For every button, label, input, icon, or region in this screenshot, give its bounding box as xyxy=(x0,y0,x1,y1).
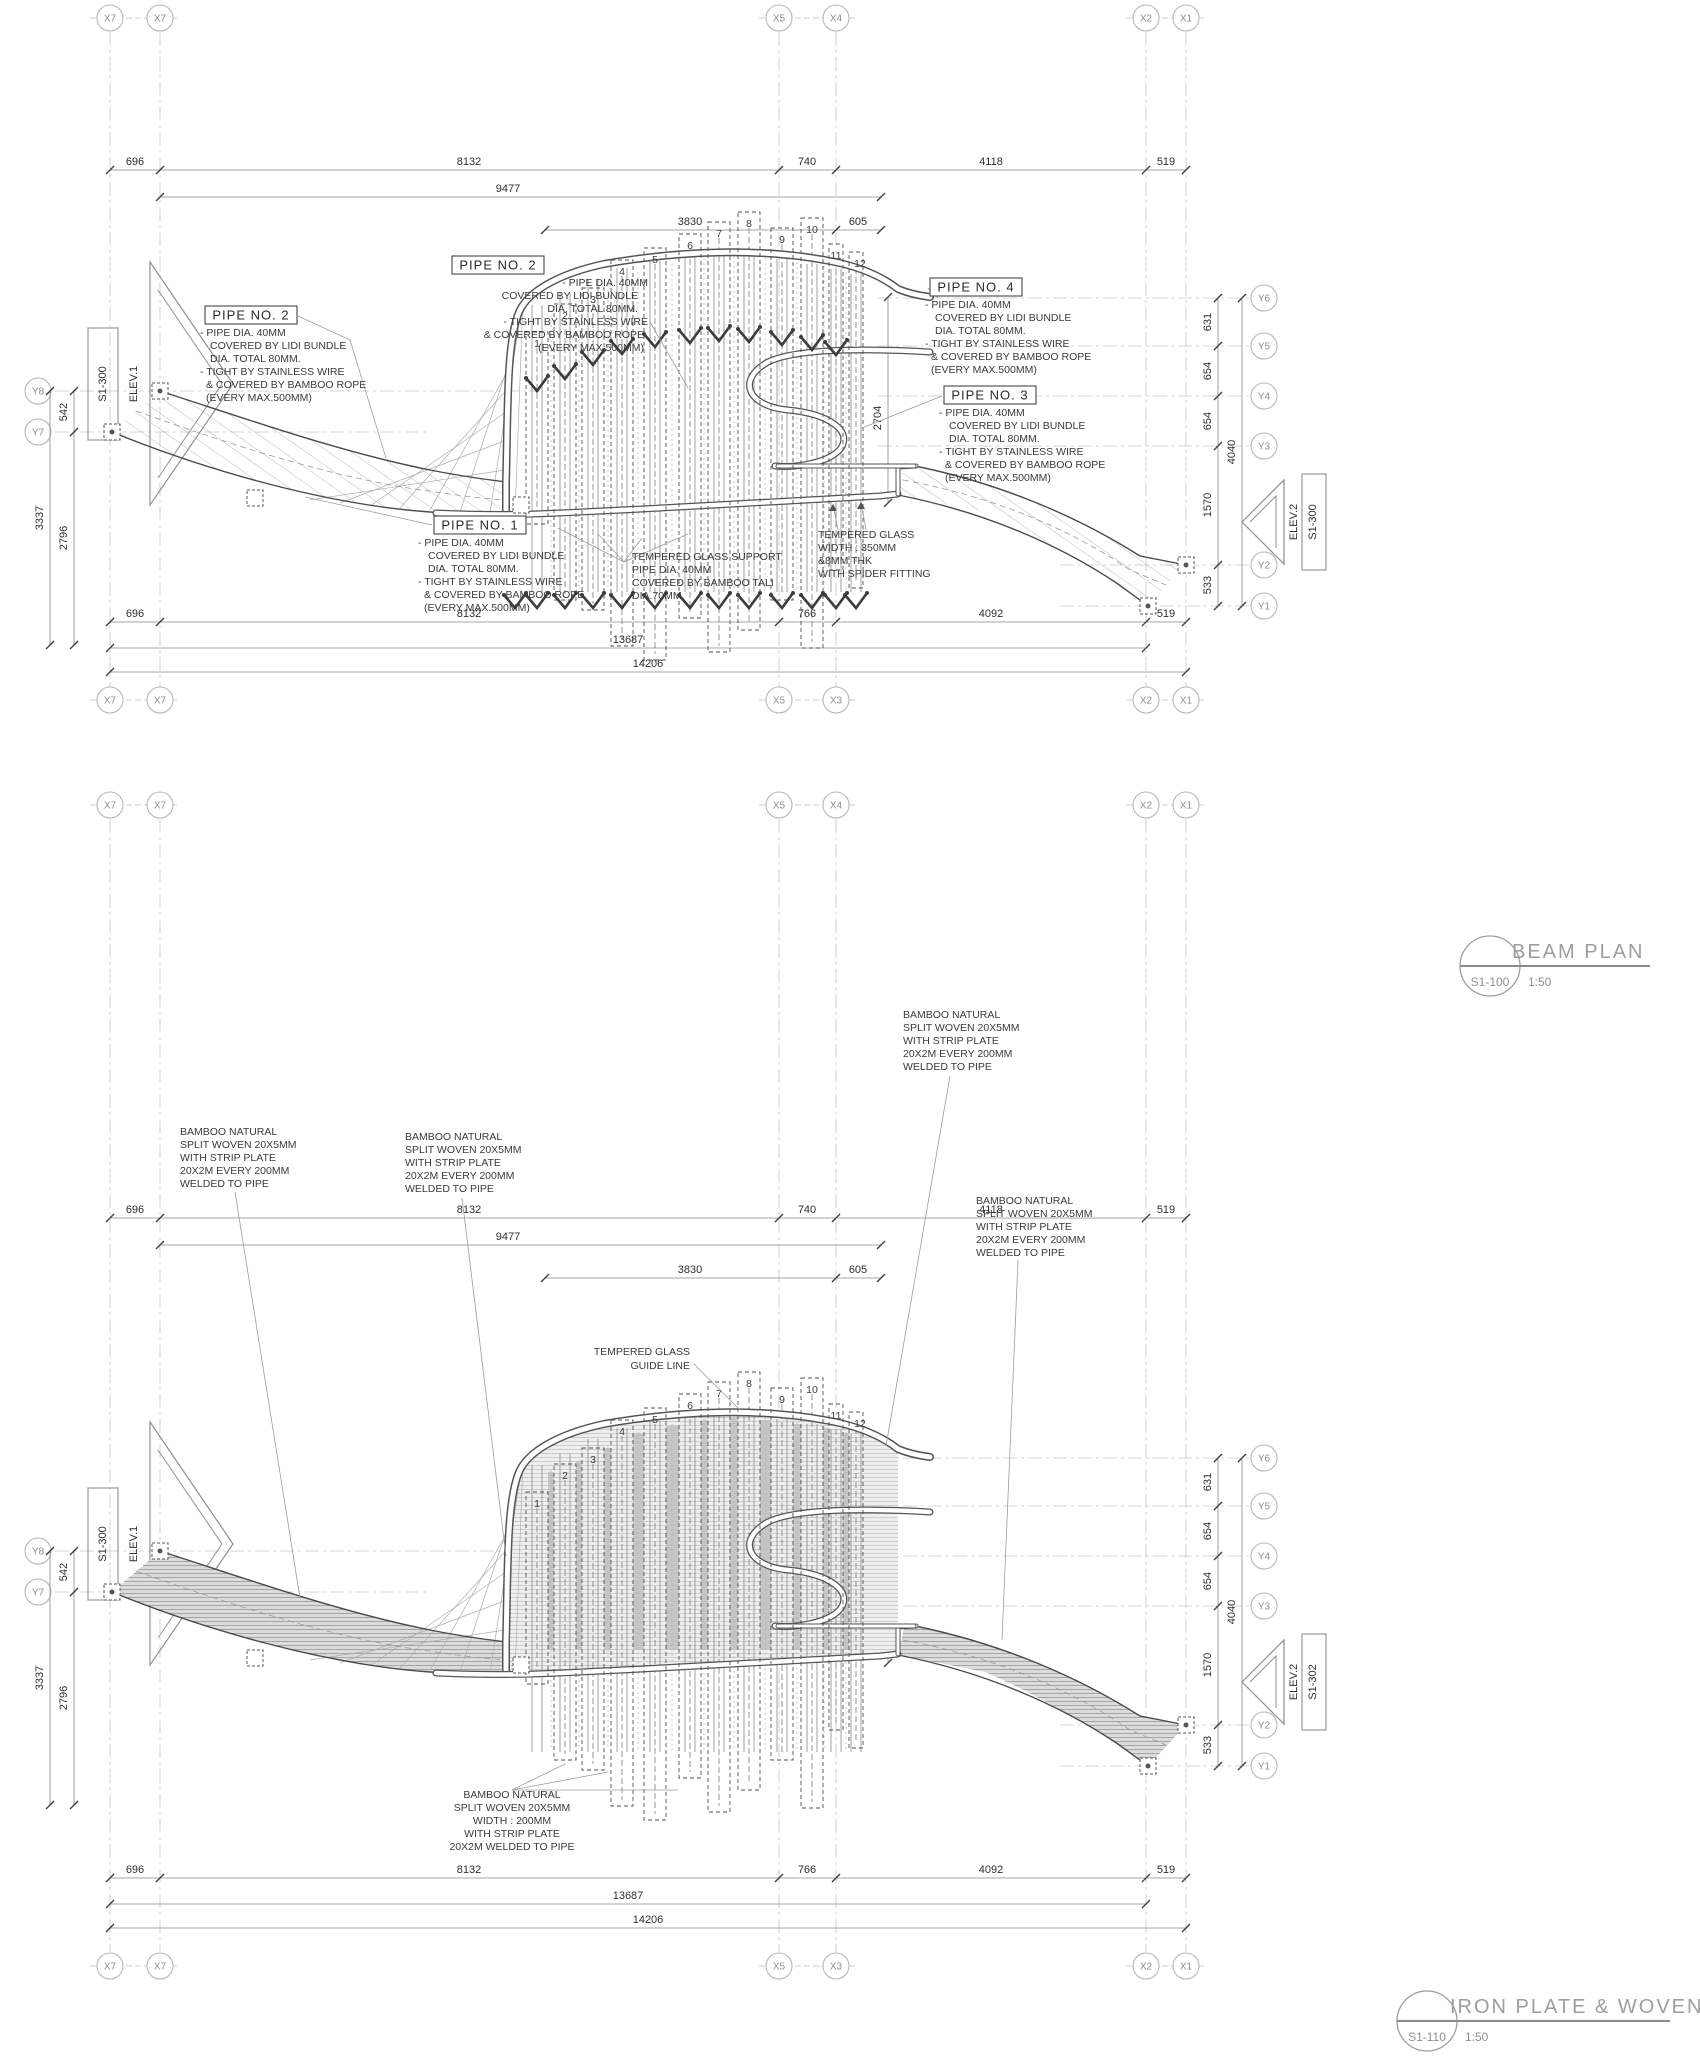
note-bamboo-left: BAMBOO NATURAL SPLIT WOVEN 20X5MM WITH S… xyxy=(180,1126,297,1190)
callout-line: COVERED BY LIDI BUNDLE xyxy=(502,290,638,302)
callout-line: COVERED BY LIDI BUNDLE xyxy=(935,312,1071,324)
callout-line: (EVERY MAX.500MM) xyxy=(945,472,1051,484)
callout-line: DIA. TOTAL 80MM. xyxy=(210,353,301,365)
note-line: BAMBOO NATURAL xyxy=(903,1009,1000,1021)
callout-line: & COVERED BY BAMBOO ROPE xyxy=(206,379,366,391)
note-line: 20X2M EVERY 200MM xyxy=(903,1048,1012,1060)
note-line: WITH SPIDER FITTING xyxy=(818,568,931,580)
dims-lower xyxy=(106,608,1190,676)
callout-title: PIPE NO. 2 xyxy=(459,258,536,273)
callout-line: & COVERED BY BAMBOO ROPE xyxy=(931,351,1091,363)
panel-iron-plate-woven: S1-302 BAMBOO NATURAL SPLIT WOVEN 20X5MM… xyxy=(25,792,1700,2051)
note-line: WELDED TO PIPE xyxy=(976,1247,1065,1259)
drawing-title: BEAM PLAN xyxy=(1512,941,1644,963)
note-line: BAMBOO NATURAL xyxy=(180,1126,277,1138)
note-line: 20X2M EVERY 200MM xyxy=(405,1170,514,1182)
note-line: WELDED TO PIPE xyxy=(180,1178,269,1190)
callout-line: - PIPE DIA. 40MM xyxy=(200,327,286,339)
note-line: WIDTH : 200MM xyxy=(473,1815,551,1827)
elevation-ref: S1-300 xyxy=(1307,504,1319,539)
note-line: WIDTH : 350MM xyxy=(818,542,896,554)
note-line: 20X2M EVERY 200MM xyxy=(976,1234,1085,1246)
callout-line: DIA. TOTAL 80MM. xyxy=(949,433,1040,445)
callout-line: (EVERY MAX.500MM) xyxy=(931,364,1037,376)
grid-bubbles-top xyxy=(90,792,1206,818)
note-line: WELDED TO PIPE xyxy=(405,1183,494,1195)
callout-pipe4: PIPE NO. 4 - PIPE DIA. 40MM COVERED BY L… xyxy=(925,278,1091,376)
note-line: WELDED TO PIPE xyxy=(903,1061,992,1073)
dims-lower xyxy=(106,1864,1190,1932)
callout-line: - TIGHT BY STAINLESS WIRE xyxy=(418,576,563,588)
title-block-iron-plate: IRON PLATE & WOVEN S1-110 1:50 xyxy=(1397,1991,1700,2051)
callout-line: - TIGHT BY STAINLESS WIRE xyxy=(503,316,648,328)
drawing-scale: 1:50 xyxy=(1528,975,1552,989)
callout-title: PIPE NO. 2 xyxy=(212,308,289,323)
callout-pipe2-left: PIPE NO. 2 - PIPE DIA. 40MM COVERED BY L… xyxy=(200,306,366,404)
callout-line: (EVERY MAX.500MM) xyxy=(424,602,530,614)
note-line: TEMPERED GLASS xyxy=(594,1346,690,1358)
callout-title: PIPE NO. 1 xyxy=(441,518,518,533)
callout-pipe1: PIPE NO. 1 - PIPE DIA. 40MM COVERED BY L… xyxy=(418,516,584,614)
note-line: &8MM THK xyxy=(818,555,872,567)
callout-line: COVERED BY LIDI BUNDLE xyxy=(949,420,1085,432)
callout-line: - PIPE DIA. 40MM xyxy=(925,299,1011,311)
drawing-ref: S1-100 xyxy=(1471,975,1510,989)
callout-line: (EVERY MAX.500MM) xyxy=(538,342,644,354)
note-line: COVERED BY BAMBOO TALI xyxy=(632,577,774,589)
grid-lines-vertical xyxy=(110,819,1186,1952)
drawing-scale: 1:50 xyxy=(1465,2030,1489,2044)
title-block-beam-plan: BEAM PLAN S1-100 1:50 xyxy=(1460,936,1650,996)
note-line: SPLIT WOVEN 20X5MM xyxy=(180,1139,297,1151)
callout-line: COVERED BY LIDI BUNDLE xyxy=(428,550,564,562)
drawing-title: IRON PLATE & WOVEN xyxy=(1450,1996,1700,2018)
grid-bubbles-bottom xyxy=(90,687,1206,713)
drawing-canvas: X7 X7 X5 X4 X2 X1 X7 X7 X5 X3 X2 X1 696 … xyxy=(0,0,1700,2061)
note-line: GUIDE LINE xyxy=(630,1360,690,1372)
dims-upper xyxy=(106,156,1190,234)
note-bamboo-right: BAMBOO NATURAL SPLIT WOVEN 20X5MM WITH S… xyxy=(976,1195,1093,1259)
grid-bubbles-bottom xyxy=(90,1953,1206,1979)
drawing-ref: S1-110 xyxy=(1408,2030,1446,2044)
note-line: BAMBOO NATURAL xyxy=(405,1131,502,1143)
note-bamboo-mid: BAMBOO NATURAL SPLIT WOVEN 20X5MM WITH S… xyxy=(405,1131,522,1195)
note-line: BAMBOO NATURAL xyxy=(463,1789,560,1801)
callout-line: & COVERED BY BAMBOO ROPE xyxy=(484,329,644,341)
note-line: 20X2M EVERY 200MM xyxy=(180,1165,289,1177)
panel-beam-plan: S1-300 PIPE NO. 2 - PIPE DIA. 40MM COVER… xyxy=(25,5,1650,996)
note-line: SPLIT WOVEN 20X5MM xyxy=(976,1208,1093,1220)
drawing-sheet: X7 X7 X5 X4 X2 X1 X7 X7 X5 X3 X2 X1 696 … xyxy=(0,0,1700,2061)
note-bamboo-top-right: BAMBOO NATURAL SPLIT WOVEN 20X5MM WITH S… xyxy=(903,1009,1020,1073)
callout-line: - PIPE DIA. 40MM xyxy=(562,277,648,289)
note-line: WITH STRIP PLATE xyxy=(405,1157,501,1169)
callout-line: - TIGHT BY STAINLESS WIRE xyxy=(939,446,1084,458)
callout-line: DIA. TOTAL 80MM. xyxy=(547,303,638,315)
callout-line: & COVERED BY BAMBOO ROPE xyxy=(945,459,1105,471)
note-line: BAMBOO NATURAL xyxy=(976,1195,1073,1207)
callout-line: DIA. TOTAL 80MM. xyxy=(428,563,519,575)
callout-line: (EVERY MAX.500MM) xyxy=(206,392,312,404)
note-bamboo-bottom: BAMBOO NATURAL SPLIT WOVEN 20X5MM WIDTH … xyxy=(449,1789,574,1853)
callout-line: - PIPE DIA. 40MM xyxy=(418,537,504,549)
note-glass-guide: TEMPERED GLASS GUIDE LINE xyxy=(594,1346,690,1372)
note-line: WITH STRIP PLATE xyxy=(180,1152,276,1164)
grid-bubbles-top xyxy=(90,5,1206,31)
callout-line: - TIGHT BY STAINLESS WIRE xyxy=(200,366,345,378)
note-line: WITH STRIP PLATE xyxy=(976,1221,1072,1233)
callout-title: PIPE NO. 3 xyxy=(951,388,1028,403)
note-line: DIA.70MM xyxy=(632,590,682,602)
note-line: SPLIT WOVEN 20X5MM xyxy=(903,1022,1020,1034)
arrow-up-icon xyxy=(857,502,865,509)
note-line: TEMPERED GLASS SUPPORT xyxy=(632,551,782,563)
callout-line: - PIPE DIA. 40MM xyxy=(939,407,1025,419)
note-line: SPLIT WOVEN 20X5MM xyxy=(454,1802,571,1814)
callout-line: COVERED BY LIDI BUNDLE xyxy=(210,340,346,352)
callout-line: & COVERED BY BAMBOO ROPE xyxy=(424,589,584,601)
note-line: TEMPERED GLASS xyxy=(818,529,914,541)
callout-title: PIPE NO. 4 xyxy=(937,280,1014,295)
callout-line: - TIGHT BY STAINLESS WIRE xyxy=(925,338,1070,350)
woven-fills xyxy=(112,1412,1186,1766)
note-line: 20X2M WELDED TO PIPE xyxy=(449,1841,574,1853)
note-line: WITH STRIP PLATE xyxy=(464,1828,560,1840)
note-line: PIPE DIA. 40MM xyxy=(632,564,711,576)
right-band-hatch xyxy=(898,464,1186,606)
note-line: WITH STRIP PLATE xyxy=(903,1035,999,1047)
callout-pipe3: PIPE NO. 3 - PIPE DIA. 40MM COVERED BY L… xyxy=(939,386,1105,484)
note-line: SPLIT WOVEN 20X5MM xyxy=(405,1144,522,1156)
elevation-ref: S1-302 xyxy=(1307,1664,1319,1699)
note-glass: TEMPERED GLASS WIDTH : 350MM &8MM THK WI… xyxy=(818,529,931,580)
callout-line: DIA. TOTAL 80MM. xyxy=(935,325,1026,337)
